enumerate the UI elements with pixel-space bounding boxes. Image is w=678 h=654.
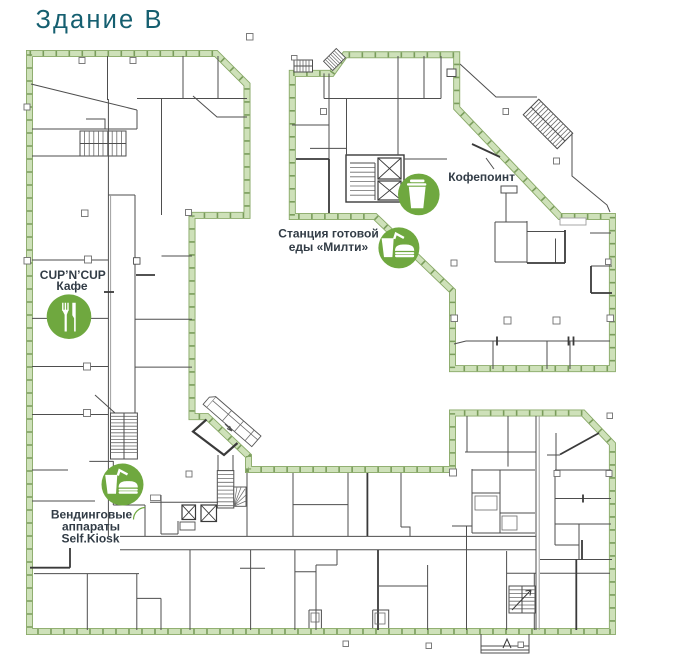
svg-text:Self.Kiosk: Self.Kiosk (61, 532, 119, 546)
svg-text:Кофепоинт: Кофепоинт (448, 170, 515, 184)
svg-text:еды «Милти»: еды «Милти» (289, 240, 369, 254)
svg-text:Станция готовой: Станция готовой (278, 227, 378, 241)
svg-text:Кафе: Кафе (56, 279, 87, 293)
